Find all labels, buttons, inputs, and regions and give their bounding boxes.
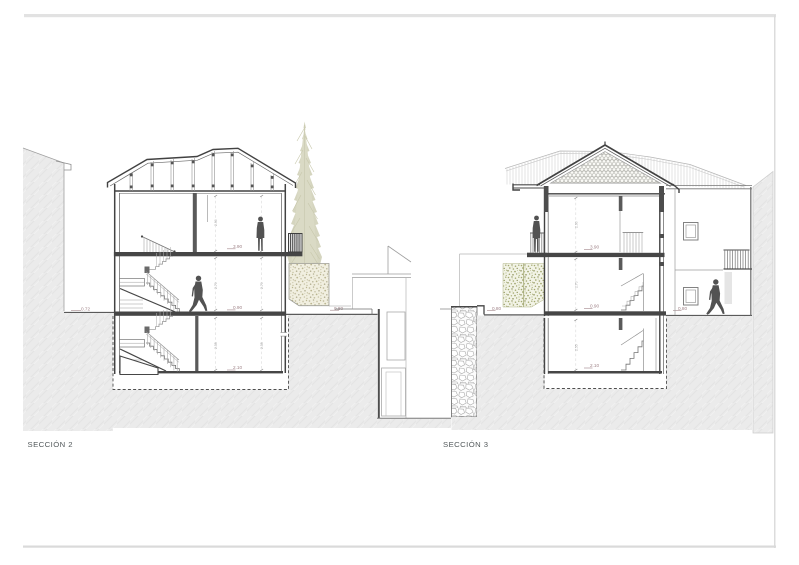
svg-text:2.55: 2.55: [214, 342, 218, 349]
svg-text:SECCIÓN 3: SECCIÓN 3: [443, 440, 489, 449]
svg-text:2.90: 2.90: [574, 221, 578, 228]
svg-text:0.80: 0.80: [678, 306, 688, 311]
svg-text:0.90: 0.90: [590, 304, 600, 309]
svg-text:2.90: 2.90: [214, 219, 218, 226]
svg-text:2.70: 2.70: [214, 282, 218, 289]
svg-text:2.55: 2.55: [260, 342, 264, 349]
svg-text:3.90: 3.90: [233, 244, 243, 249]
svg-text:2.55: 2.55: [574, 344, 578, 351]
svg-text:2.70: 2.70: [260, 282, 264, 289]
svg-text:SECCIÓN 2: SECCIÓN 2: [28, 440, 74, 449]
svg-text:3.90: 3.90: [590, 245, 600, 250]
svg-text:0.80: 0.80: [334, 306, 344, 311]
svg-text:2.70: 2.70: [574, 281, 578, 288]
svg-text:0.72: 0.72: [81, 306, 91, 311]
svg-text:0.90: 0.90: [233, 305, 243, 310]
svg-text:2.10: 2.10: [233, 365, 243, 370]
svg-text:0.80: 0.80: [492, 306, 502, 311]
svg-text:2.10: 2.10: [590, 363, 600, 368]
